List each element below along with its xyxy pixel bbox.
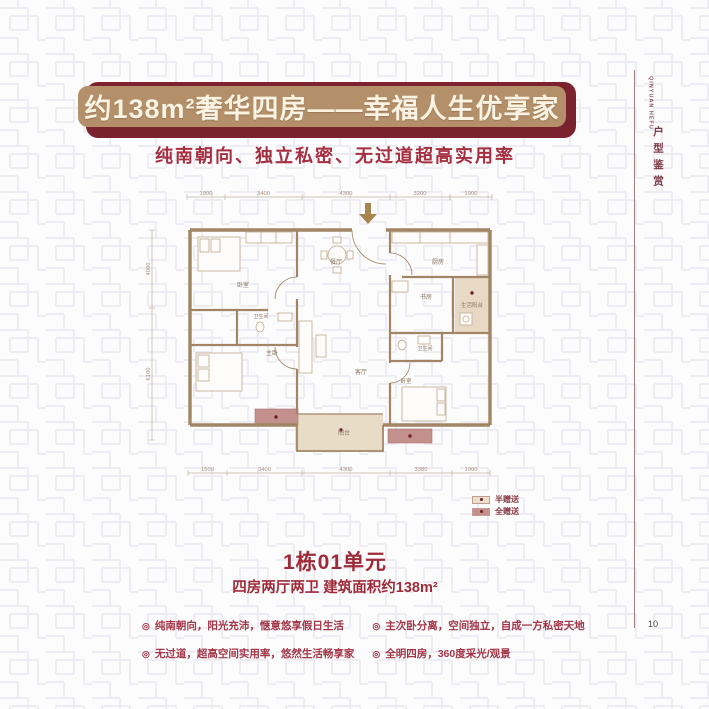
room-label: 主卧 bbox=[266, 349, 278, 357]
sidebar-section-title: 户型鉴赏 bbox=[651, 126, 666, 192]
room-label: 书房 bbox=[420, 293, 432, 301]
dimension-label: 3400 bbox=[257, 191, 270, 197]
legend-dot bbox=[480, 498, 483, 501]
feature-text: 无过道，超高空间实用率，悠然生活畅享家 bbox=[155, 648, 355, 661]
room-label: 阳台 bbox=[338, 429, 350, 437]
floorplan-drawing: 1900340043003200190015003400430033801900… bbox=[140, 185, 540, 485]
dimension-label: 3200 bbox=[414, 191, 427, 197]
legend-row: 全赠送 bbox=[472, 507, 519, 516]
room-label: 卫生间 bbox=[253, 313, 268, 320]
feature-item: ◎主次卧分离，空间独立，自成一方私密天地 bbox=[372, 620, 584, 633]
feature-item: ◎纯南朝向，阳光充沛，惬意悠享假日生活 bbox=[142, 620, 354, 633]
entry-arrow-icon bbox=[359, 203, 377, 224]
room-label: 厨房 bbox=[432, 258, 444, 266]
feature-column-left: ◎纯南朝向，阳光充沛，惬意悠享假日生活◎无过道，超高空间实用率，悠然生活畅享家 bbox=[142, 620, 354, 661]
feature-list: ◎纯南朝向，阳光充沛，惬意悠享假日生活◎无过道，超高空间实用率，悠然生活畅享家◎… bbox=[142, 620, 572, 661]
dimension-label: 1900 bbox=[465, 191, 478, 197]
feature-column-right: ◎主次卧分离，空间独立，自成一方私密天地◎全明四房，360度采光/观景 bbox=[372, 620, 584, 661]
dimension-label: 3400 bbox=[258, 467, 271, 473]
gift-legend: 半赠送全赠送 bbox=[472, 495, 519, 516]
dimension-label: 6100 bbox=[146, 368, 152, 381]
dimension-label: 3380 bbox=[415, 467, 428, 473]
dimension-label: 4300 bbox=[340, 467, 353, 473]
feature-text: 全明四房，360度采光/观景 bbox=[385, 648, 510, 661]
legend-row: 半赠送 bbox=[472, 495, 519, 504]
dimension-label: 1500 bbox=[201, 467, 214, 473]
bullet-icon: ◎ bbox=[372, 620, 380, 633]
dimension-label: 1900 bbox=[465, 467, 478, 473]
legend-swatch bbox=[472, 508, 490, 516]
legend-label: 全赠送 bbox=[495, 508, 519, 516]
bullet-icon: ◎ bbox=[372, 648, 380, 661]
dimension-label: 4300 bbox=[340, 191, 353, 197]
unit-spec: 四房两厅两卫 建筑面积约138m² bbox=[0, 576, 670, 597]
page-subtitle: 纯南朝向、独立私密、无过道超高实用率 bbox=[0, 142, 670, 168]
unit-name: 1栋01单元 bbox=[0, 546, 670, 576]
feature-item: ◎无过道，超高空间实用率，悠然生活畅享家 bbox=[142, 648, 354, 661]
page-title: 约138m²奢华四房——幸福人生优享家 bbox=[84, 87, 559, 126]
dimension-label: 1900 bbox=[200, 191, 213, 197]
room-label: 生活阳台 bbox=[461, 301, 484, 309]
bullet-icon: ◎ bbox=[142, 648, 150, 661]
sidebar-brand-en: QINYUAN HEFU bbox=[645, 76, 654, 130]
bullet-icon: ◎ bbox=[142, 620, 150, 633]
sidebar-divider bbox=[634, 70, 635, 628]
feature-item: ◎全明四房，360度采光/观景 bbox=[372, 648, 584, 661]
room-label: 餐厅 bbox=[330, 258, 342, 266]
page-number: 10 bbox=[648, 619, 658, 629]
room-label: 卫生间 bbox=[417, 345, 432, 352]
room-label: 客厅 bbox=[355, 368, 367, 376]
feature-text: 纯南朝向，阳光充沛，惬意悠享假日生活 bbox=[155, 620, 344, 633]
legend-swatch bbox=[472, 496, 490, 504]
room-label: 卧室 bbox=[237, 281, 249, 289]
legend-dot bbox=[480, 510, 483, 513]
legend-label: 半赠送 bbox=[495, 496, 519, 504]
title-banner: 约138m²奢华四房——幸福人生优享家 bbox=[78, 82, 576, 138]
dimension-label: 4000 bbox=[146, 263, 152, 276]
title-banner-plate: 约138m²奢华四房——幸福人生优享家 bbox=[78, 86, 566, 127]
room-label: 卧室 bbox=[400, 377, 412, 385]
brochure-page: 约138m²奢华四房——幸福人生优享家 纯南朝向、独立私密、无过道超高实用率 bbox=[0, 0, 709, 709]
feature-text: 主次卧分离，空间独立，自成一方私密天地 bbox=[385, 620, 585, 633]
